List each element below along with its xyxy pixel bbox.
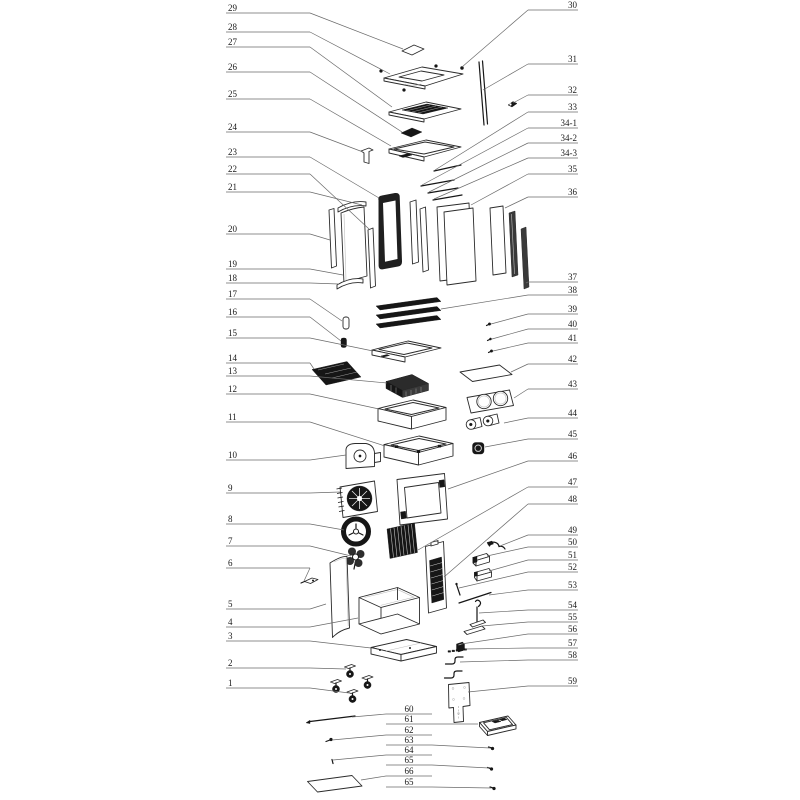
callout-right-38: 38: [441, 285, 578, 309]
callout-left-24: 24: [226, 122, 363, 152]
callout-number: 51: [568, 550, 577, 560]
callout-leader-line: [461, 634, 528, 644]
part-screw-40: [488, 338, 492, 341]
callout-right-43: 43: [514, 379, 578, 398]
part-bracket-24: [361, 148, 373, 164]
callout-left-28: 28: [226, 22, 390, 74]
callout-right-33: 33: [435, 102, 578, 170]
callout-number: 22: [228, 164, 237, 174]
callout-right-44: 44: [504, 408, 578, 423]
callout-right-58: 58: [460, 650, 578, 662]
callout-leader-line: [333, 755, 386, 760]
callout-number: 50: [568, 537, 578, 547]
callout-number: 45: [568, 429, 578, 439]
callout-leader-line: [310, 604, 326, 609]
part-door-frame-23: [379, 193, 402, 268]
callout-left-19: 19: [226, 259, 343, 275]
callout-right-40: 40: [492, 319, 578, 339]
exploded-parts-diagram: 2928272625242322212019181716151413121110…: [0, 0, 800, 800]
callout-number: 31: [568, 54, 577, 64]
callout-leader-line: [500, 535, 528, 546]
callout-leader-line: [352, 714, 386, 717]
callout-number: 44: [568, 408, 578, 418]
part-grommet-32: [508, 102, 517, 108]
callout-leader-line: [310, 234, 330, 240]
callout-right-49: 49: [500, 525, 578, 546]
part-base-beam-3: [371, 640, 437, 662]
callout-leader-line: [434, 158, 528, 199]
callout-left-16: 16: [226, 307, 341, 341]
callout-number: 2: [228, 658, 233, 668]
part-evaporator-13: [386, 375, 429, 398]
callout-number: 19: [228, 259, 238, 269]
part-side-panel-5: [330, 556, 350, 637]
part-fan-ring-8: [344, 519, 369, 544]
callout-right-31: 31: [483, 54, 578, 90]
callout-number: 4: [228, 617, 233, 627]
part-strip-60: [306, 716, 355, 724]
callout-leader-line: [468, 686, 528, 692]
part-bottom-strip-18: [337, 279, 363, 289]
part-fan-blade-7: [346, 548, 365, 570]
callout-leader-line: [505, 197, 528, 208]
part-tray-15: [372, 341, 441, 362]
part-screw-41: [489, 350, 493, 353]
callout-number: 15: [228, 328, 238, 338]
callout-number: 40: [568, 319, 578, 329]
callout-number: 34-1: [561, 118, 578, 128]
callout-leader-line: [511, 364, 528, 372]
callout-leader-line: [310, 524, 344, 530]
callout-number: 54: [568, 600, 578, 610]
part-cover-strip-29: [402, 45, 424, 55]
callout-number: 9: [228, 483, 233, 493]
part-coil-panel-48: [426, 541, 447, 614]
part-pin-17: [343, 317, 349, 329]
callout-leader-line: [487, 547, 528, 556]
part-screw-62: [326, 738, 333, 742]
callout-number: 36: [568, 187, 578, 197]
callout-number: 47: [568, 477, 578, 487]
part-pin-64: [332, 760, 333, 764]
part-pin-52: [456, 583, 461, 595]
part-mount-plate-59: [449, 683, 471, 723]
callout-leader-line: [465, 648, 528, 649]
part-filter-14: [312, 362, 361, 386]
part-tray-top-25: [389, 140, 461, 161]
callout-left-14: 14: [226, 353, 314, 369]
callout-leader-line: [441, 295, 528, 309]
part-strip-37: [521, 227, 529, 289]
callout-left-25: 25: [226, 89, 391, 146]
callout-leader-line: [310, 546, 351, 556]
callout-number: 33: [568, 102, 578, 112]
part-motors-44: [466, 414, 499, 429]
callout-number: 21: [228, 182, 237, 192]
callout-leader-line: [310, 455, 346, 460]
part-pin-16: [341, 338, 347, 348]
part-top-lid-28: [384, 67, 463, 89]
callout-number: 16: [228, 307, 238, 317]
callout-number: 6: [228, 558, 233, 568]
callout-leader-line: [459, 572, 528, 588]
part-gasket-26: [401, 128, 422, 137]
callout-number: 58: [568, 650, 578, 660]
callout-number: 64: [405, 745, 415, 755]
callout-number: 65: [405, 777, 415, 787]
callout-left-17: 17: [226, 289, 342, 321]
callout-left-18: 18: [226, 273, 339, 284]
callout-right-57: 57: [465, 638, 578, 649]
callout-leader-line: [432, 745, 490, 748]
callout-left-23: 23: [226, 147, 379, 198]
callout-number: 34-3: [561, 148, 578, 158]
callout-leader-line: [310, 317, 341, 341]
callout-number: 57: [568, 638, 578, 648]
part-side-panel-36: [490, 206, 518, 277]
callout-left-29: 29: [226, 3, 403, 49]
part-basin-11: [384, 436, 453, 465]
callout-number: 1: [228, 678, 233, 688]
callout-left-13: 13: [226, 366, 387, 383]
callout-number: 43: [568, 379, 578, 389]
callout-number: 65: [405, 755, 415, 765]
callout-left-2: 2: [226, 658, 346, 669]
callout-leader-line: [310, 99, 391, 146]
callout-right-36: 36: [505, 187, 578, 208]
callout-number: 59: [568, 676, 578, 686]
callout-number: 48: [568, 494, 578, 504]
callout-number: 30: [568, 0, 578, 10]
callout-leader-line: [504, 418, 528, 423]
callout-number: 25: [228, 89, 238, 99]
callout-leader-line: [483, 64, 528, 90]
part-screw-65b: [490, 787, 496, 790]
part-strip-22: [368, 228, 376, 288]
callout-number: 8: [228, 514, 233, 524]
callout-number: 37: [568, 272, 578, 282]
part-side-rail-20: [329, 209, 337, 269]
callout-left-1: 1: [226, 678, 349, 693]
callout-number: 35: [568, 164, 578, 174]
callout-leader-line: [493, 343, 528, 351]
callout-right-46: 46: [448, 451, 578, 489]
callout-number: 23: [228, 147, 238, 157]
callout-leader-line: [471, 174, 528, 205]
callout-bottom-66: 66: [361, 766, 432, 780]
callout-number: 7: [228, 536, 233, 546]
callout-left-8: 8: [226, 514, 344, 530]
callout-leader-line: [310, 668, 346, 669]
callout-leader-line: [310, 32, 390, 74]
callout-leader-line: [479, 610, 528, 613]
callout-left-12: 12: [226, 384, 379, 409]
callout-leader-line: [489, 560, 528, 571]
callout-left-15: 15: [226, 328, 373, 351]
part-plate-55: [464, 626, 485, 635]
callout-leader-line: [460, 660, 528, 662]
callout-right-32: 32: [513, 85, 578, 103]
part-fan-bracket-43: [467, 390, 514, 413]
part-front-panel-19: [341, 207, 367, 284]
part-duct-panel-46: [397, 474, 448, 526]
part-rods-31: [479, 61, 488, 125]
callout-number: 39: [568, 304, 578, 314]
callout-right-39: 39: [491, 304, 578, 324]
part-back-panels-35: [437, 203, 476, 285]
callout-number: 52: [568, 562, 577, 572]
callout-leader-line: [432, 765, 489, 768]
part-wire-hooks-58: [445, 657, 464, 678]
callout-number: 56: [568, 624, 578, 634]
callout-leader-line: [332, 735, 386, 740]
callout-number: 42: [568, 354, 577, 364]
part-box-51: [475, 569, 492, 582]
callout-leader-line: [310, 269, 343, 275]
callout-leader-line: [310, 492, 340, 493]
callout-number: 13: [228, 366, 238, 376]
part-evap-grid-47: [387, 523, 418, 559]
part-casters-2: [345, 665, 374, 689]
callout-leader-line: [444, 504, 528, 577]
callout-leader-line: [361, 776, 386, 780]
part-screw-63: [489, 747, 495, 750]
callout-right-41: 41: [493, 333, 578, 351]
callout-number: 5: [228, 599, 233, 609]
callout-leader-line: [485, 439, 528, 447]
callout-leader-line: [422, 128, 528, 185]
callout-right-34-2: 34-2: [429, 133, 578, 192]
part-plate-66: [308, 776, 363, 793]
callout-leader-line: [310, 394, 379, 409]
callout-leader-line: [513, 95, 528, 103]
callout-right-55: 55: [482, 612, 578, 626]
callout-leader-line: [514, 389, 528, 398]
callout-number: 63: [405, 735, 415, 745]
callout-bottom-65: 65: [386, 755, 489, 768]
callout-number: 24: [228, 122, 238, 132]
callout-number: 60: [405, 704, 415, 714]
callout-left-3: 3: [226, 631, 371, 648]
callout-leader-line: [448, 461, 528, 489]
diagram-canvas: 2928272625242322212019181716151413121110…: [0, 0, 800, 800]
callout-leader-line: [462, 10, 528, 67]
callout-right-53: 53: [489, 580, 578, 595]
part-condenser-9: [337, 481, 378, 518]
callout-leader-line: [482, 622, 528, 626]
part-control-box-61: [480, 716, 517, 736]
callout-number: 55: [568, 612, 578, 622]
callout-bottom-64: 64: [333, 745, 432, 760]
part-box-50: [473, 554, 490, 567]
callout-number: 27: [228, 37, 238, 47]
callout-number: 18: [228, 273, 238, 283]
callout-bottom-63: 63: [386, 735, 490, 748]
callout-number: 61: [405, 714, 414, 724]
callout-bottom-60: 60: [352, 704, 432, 717]
callout-number: 26: [228, 62, 238, 72]
part-chassis-frame-4: [359, 588, 420, 635]
callout-number: 29: [228, 3, 238, 13]
callout-leader-line: [310, 13, 403, 49]
callout-bottom-62: 62: [332, 725, 432, 740]
callout-left-5: 5: [226, 599, 326, 609]
callout-number: 20: [228, 224, 238, 234]
callout-number: 32: [568, 85, 577, 95]
callout-right-59: 59: [468, 676, 578, 692]
callout-number: 46: [568, 451, 578, 461]
callout-left-21: 21: [226, 182, 362, 205]
callout-number: 53: [568, 580, 578, 590]
callout-number: 12: [228, 384, 237, 394]
callout-number: 17: [228, 289, 238, 299]
callout-leader-line: [432, 787, 491, 788]
callout-leader-line: [310, 641, 371, 648]
callout-leader-line: [492, 329, 528, 339]
callout-right-51: 51: [489, 550, 578, 571]
callout-leader-line: [489, 590, 528, 595]
callout-right-30: 30: [462, 0, 578, 67]
callout-left-20: 20: [226, 224, 330, 240]
callout-leader-line: [310, 192, 362, 205]
callout-number: 14: [228, 353, 238, 363]
callout-number: 62: [405, 725, 414, 735]
callout-leader-line: [310, 363, 314, 369]
callout-bottom-61: 61: [386, 714, 478, 724]
part-mid-frame-27: [389, 102, 461, 122]
callout-leader-line: [310, 132, 363, 152]
callout-leader-line: [310, 47, 392, 107]
callout-number: 41: [568, 333, 577, 343]
callout-right-42: 42: [511, 354, 578, 372]
callout-number: 11: [228, 412, 237, 422]
part-door-rails: [410, 200, 429, 272]
callout-number: 38: [568, 285, 578, 295]
callout-number: 34-2: [561, 133, 578, 143]
callout-number: 3: [228, 631, 233, 641]
callout-leader-line: [310, 283, 339, 284]
callout-right-54: 54: [479, 600, 578, 613]
callout-leader-line: [310, 688, 349, 693]
callout-leader-line: [491, 314, 528, 324]
callout-left-10: 10: [226, 450, 346, 460]
part-basin-12: [378, 400, 446, 429]
callout-leader-line: [310, 299, 342, 321]
callout-bottom-65-2: 65: [386, 777, 491, 788]
part-screw-39: [487, 323, 491, 326]
part-plate-42: [460, 365, 512, 382]
part-knob-45: [473, 443, 485, 455]
part-clip-6: [301, 578, 318, 584]
callout-right-37: 37: [526, 272, 578, 283]
callout-leader-line: [310, 422, 385, 446]
callout-number: 66: [405, 766, 415, 776]
callout-left-9: 9: [226, 483, 340, 493]
callout-left-26: 26: [226, 62, 402, 132]
callout-left-6: 6: [226, 558, 310, 581]
callout-left-11: 11: [226, 412, 385, 446]
callout-number: 10: [228, 450, 238, 460]
callout-right-45: 45: [485, 429, 578, 447]
callout-leader-line: [435, 112, 528, 170]
part-hook-bracket-54: [470, 600, 486, 627]
callout-number: 49: [568, 525, 578, 535]
callout-right-34-3: 34-3: [434, 148, 578, 199]
part-louvers-38: [376, 298, 441, 329]
part-blower-10: [346, 444, 381, 469]
callout-number: 28: [228, 22, 238, 32]
callout-left-7: 7: [226, 536, 351, 556]
